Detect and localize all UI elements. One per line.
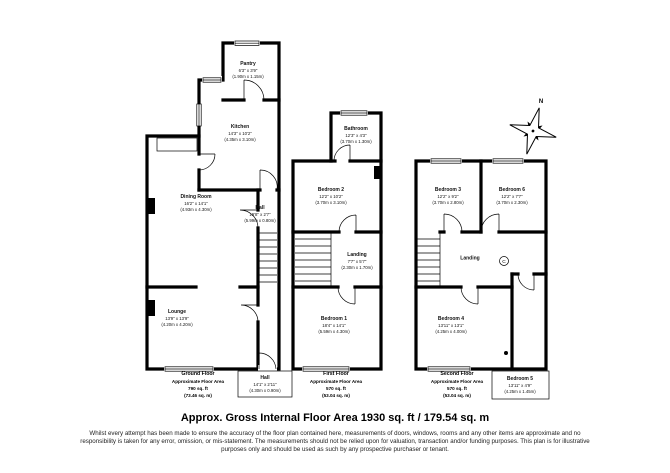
- room-label-bedroom-4: Bedroom 4 13'11" x 13'1" (4.25m x 4.00m): [435, 316, 466, 334]
- chimney-breast: [374, 166, 381, 179]
- room-label-bedroom-3: Bedroom 3 12'2" x 9'2" (3.70m x 2.80m): [432, 187, 463, 205]
- compass-icon: N: [504, 99, 563, 160]
- chimney-breast: [147, 198, 155, 214]
- room-label-lounge: Lounge 13'9" x 13'9" (4.20m x 4.20m): [161, 309, 192, 327]
- room-label-bedroom-6: Bedroom 6 12'2" x 7'7" (3.70m x 2.30m): [496, 187, 527, 205]
- first-floor-area-summary: First Floor Approximate Floor Area 570 s…: [310, 371, 362, 399]
- compass-north-label: N: [539, 99, 543, 105]
- stairs: [295, 239, 331, 281]
- door: [461, 287, 478, 304]
- room-label-bathroom: Bathroom 12'3" x 4'3" (3.70m x 1.30m): [340, 126, 371, 144]
- second-floor-area-summary: Second Floor Approximate Floor Area 570 …: [431, 371, 483, 399]
- door: [338, 287, 355, 304]
- room-label-bedroom-5: Bedroom 5 13'11" x 4'9" (4.25m x 1.45m): [504, 376, 535, 394]
- room-label-pantry: Pantry 6'3" x 3'9" (1.90m x 1.15m): [232, 61, 263, 79]
- room-label-dining-room: Dining Room 16'2" x 14'1" (4.93m x 4.30m…: [180, 194, 211, 212]
- chimney-breast: [147, 300, 155, 316]
- door: [518, 274, 534, 290]
- stairs: [416, 239, 440, 281]
- floorplan-page: C N Pantry 6'3" x 3'9" (1.90m x 1.15m) K…: [0, 0, 670, 473]
- door: [199, 154, 215, 170]
- door: [260, 170, 277, 190]
- door: [241, 305, 258, 322]
- stairs: [260, 233, 278, 282]
- total-area-heading: Approx. Gross Internal Floor Area 1930 s…: [0, 412, 670, 424]
- disclaimer-text: Whilst every attempt has been made to en…: [75, 430, 595, 453]
- room-label-hall: Hall 19'8" x 2'7" (5.99m x 0.80m): [244, 205, 275, 223]
- door: [481, 214, 499, 232]
- room-label-bedroom-1: Bedroom 1 18'4" x 14'1" (5.59m x 4.30m): [318, 316, 349, 334]
- point-symbol: [504, 351, 508, 355]
- door: [334, 145, 350, 161]
- room-label-kitchen: Kitchen 14'3" x 10'2" (4.35m x 3.10m): [224, 124, 255, 142]
- room-label-bedroom-2: Bedroom 2 12'2" x 10'2" (3.70m x 3.10m): [315, 187, 346, 205]
- room-label-hall-front: Hall 14'1" x 2'11" (4.30m x 0.90m): [249, 375, 280, 393]
- room-label-landing-first: Landing 7'7" x 5'7" (2.30m x 1.70m): [341, 252, 372, 270]
- door: [339, 215, 356, 232]
- ground-floor-area-summary: Ground Floor Approximate Floor Area 790 …: [172, 371, 224, 399]
- door: [444, 214, 462, 232]
- room-label-landing-second: Landing: [460, 256, 479, 263]
- recess: [157, 138, 197, 151]
- cupboard-label: C: [502, 259, 506, 265]
- floor-plan-drawing: C N: [0, 0, 670, 473]
- door: [244, 80, 264, 100]
